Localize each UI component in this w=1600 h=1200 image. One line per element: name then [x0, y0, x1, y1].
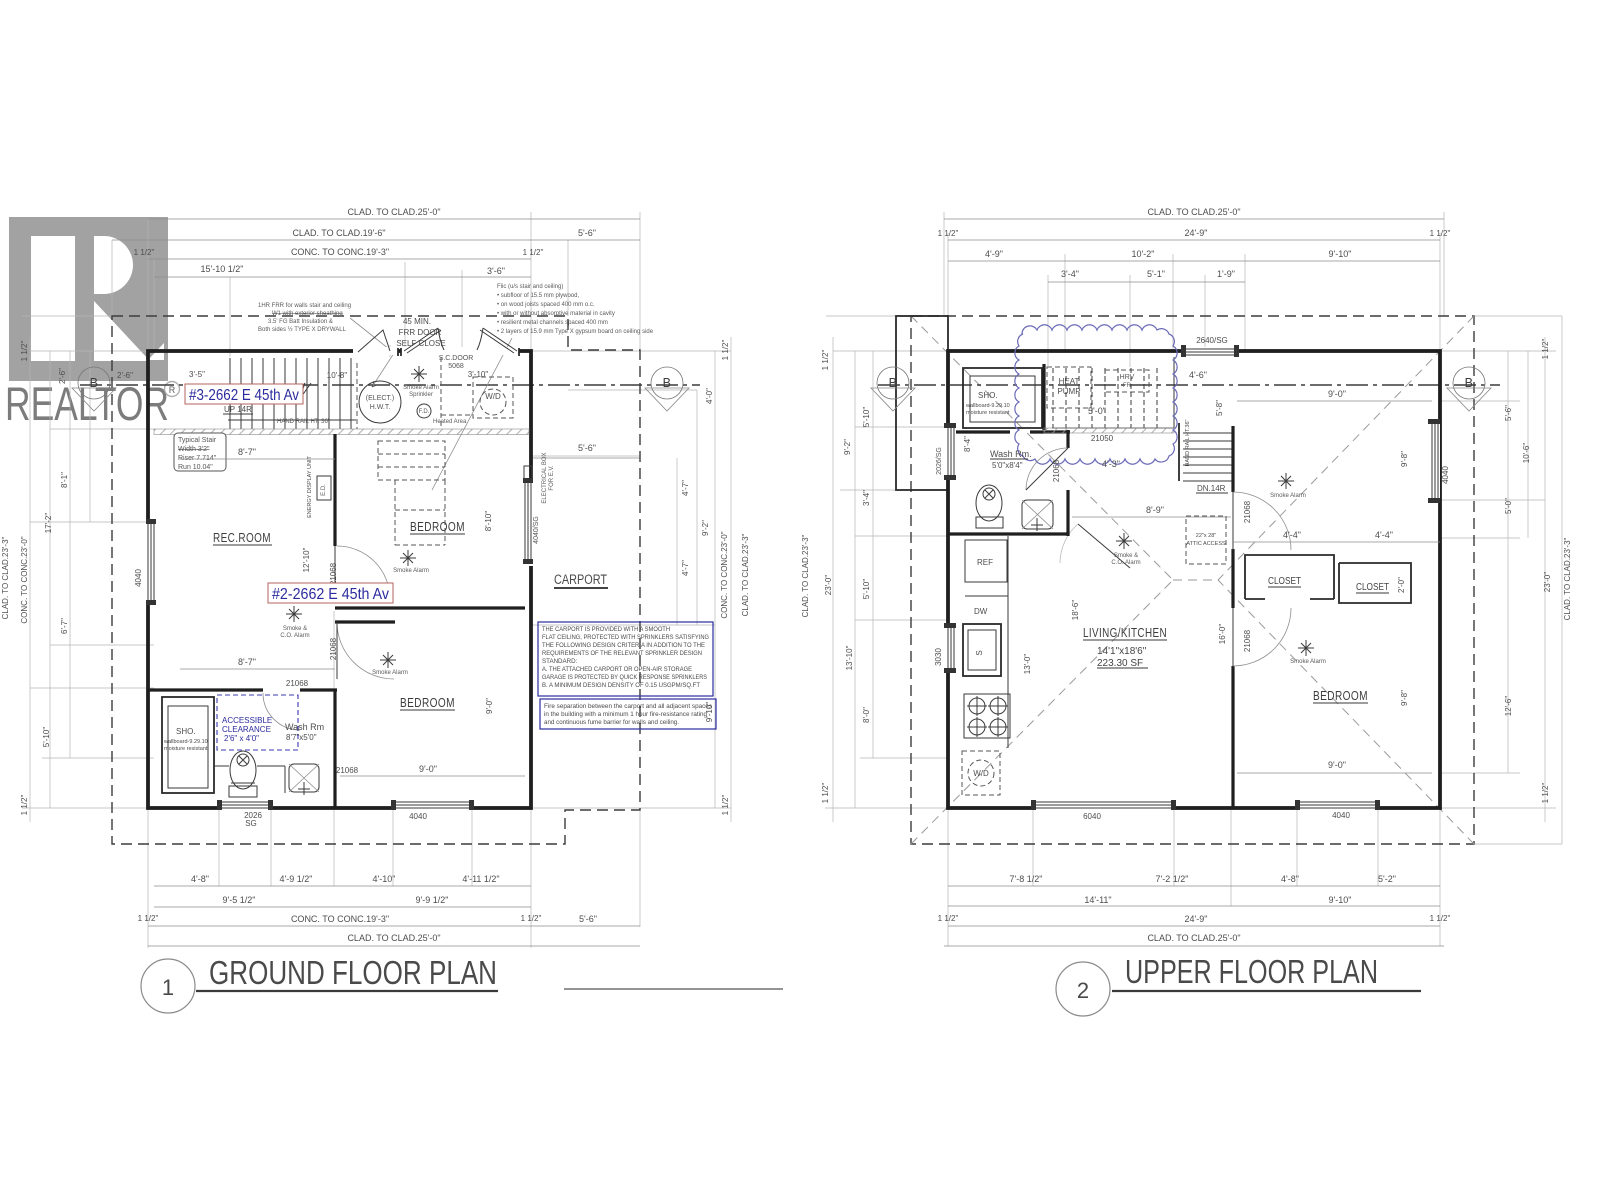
svg-text:E.D.: E.D. — [321, 484, 327, 496]
svg-text:12'-6": 12'-6" — [1504, 696, 1513, 717]
svg-text:CLAD. TO CLAD.25'-0": CLAD. TO CLAD.25'-0" — [1147, 933, 1240, 943]
svg-text:CLAD. TO CLAD.19'-6": CLAD. TO CLAD.19'-6" — [292, 228, 385, 238]
svg-text:21068: 21068 — [286, 679, 309, 688]
svg-text:Smoke &: Smoke & — [1114, 553, 1138, 559]
svg-text:3'-4": 3'-4" — [862, 490, 871, 506]
svg-text:W/D: W/D — [973, 769, 989, 778]
svg-text:CONC. TO CONC.23'-0": CONC. TO CONC.23'-0" — [20, 536, 29, 623]
svg-text:Typical Stair: Typical Stair — [178, 437, 217, 444]
svg-text:wallboard-9.29.10: wallboard-9.29.10 — [163, 739, 208, 745]
svg-text:Sprinkler: Sprinkler — [409, 392, 433, 398]
svg-text:4'-10": 4'-10" — [373, 874, 396, 884]
svg-text:R: R — [169, 385, 176, 395]
svg-text:3030: 3030 — [934, 648, 943, 666]
svg-text:Smoke Alarm: Smoke Alarm — [1270, 493, 1306, 499]
svg-text:LIVING/KITCHEN: LIVING/KITCHEN — [1083, 626, 1167, 640]
svg-text:1 1/2": 1 1/2" — [721, 795, 730, 816]
svg-text:moisture resistant: moisture resistant — [164, 746, 208, 752]
svg-text:1 1/2": 1 1/2" — [821, 350, 830, 371]
svg-text:4'-8": 4'-8" — [191, 874, 209, 884]
svg-text:4'-8": 4'-8" — [1281, 874, 1299, 884]
svg-text:• on wood joists spaced 400: • on wood joists spaced 400 mm o.c. — [497, 302, 595, 308]
svg-text:moisture resistant: moisture resistant — [966, 410, 1010, 416]
svg-text:5'-0": 5'-0" — [1504, 498, 1513, 514]
svg-text:21068: 21068 — [336, 766, 359, 775]
svg-text:9'-0": 9'-0" — [419, 764, 437, 774]
svg-text:DN.14R: DN.14R — [1197, 484, 1226, 493]
svg-text:(ELECT.): (ELECT.) — [366, 395, 394, 402]
svg-text:8'7"x5'0": 8'7"x5'0" — [286, 733, 317, 742]
svg-text:HEAT: HEAT — [1059, 377, 1080, 386]
svg-text:21068: 21068 — [1243, 629, 1252, 652]
svg-text:wallboard-9.29.10: wallboard-9.29.10 — [965, 403, 1010, 409]
svg-text:4'-4": 4'-4" — [1283, 530, 1301, 540]
svg-text:ELECTRICAL BOX: ELECTRICAL BOX — [542, 452, 548, 503]
svg-text:1 1/2": 1 1/2" — [821, 783, 830, 804]
svg-text:FR: FR — [1123, 383, 1132, 389]
svg-text:THE FOLLOWING DESIGN CRITERIA: THE FOLLOWING DESIGN CRITERIA IN ADDITIO… — [542, 642, 705, 649]
svg-text:9'-9 1/2": 9'-9 1/2" — [416, 895, 449, 905]
svg-text:CLAD. TO CLAD.25'-0": CLAD. TO CLAD.25'-0" — [347, 933, 440, 943]
svg-text:#3-2662 E 45th Av: #3-2662 E 45th Av — [189, 387, 299, 404]
svg-text:9'-8": 9'-8" — [1400, 690, 1409, 706]
svg-text:23'-0": 23'-0" — [824, 575, 833, 596]
svg-text:1 1/2": 1 1/2" — [938, 229, 959, 238]
svg-text:4'-3": 4'-3" — [1102, 459, 1120, 469]
svg-text:2: 2 — [1077, 978, 1089, 1003]
svg-text:5'-10": 5'-10" — [42, 727, 51, 748]
svg-text:10'-6": 10'-6" — [1522, 443, 1531, 464]
svg-text:14'-11": 14'-11" — [1084, 895, 1111, 905]
svg-text:Run 10.04": Run 10.04" — [178, 464, 213, 471]
svg-text:STANDARD:: STANDARD: — [542, 658, 578, 665]
svg-text:9'-5 1/2": 9'-5 1/2" — [223, 895, 256, 905]
svg-text:24'-9": 24'-9" — [1185, 914, 1208, 924]
svg-text:2'6" x 4'0": 2'6" x 4'0" — [224, 734, 259, 743]
svg-text:5'-8": 5'-8" — [1215, 400, 1224, 416]
svg-text:HRV: HRV — [1120, 374, 1135, 381]
svg-text:• 2 layers of 15.9 mm Type X g: • 2 layers of 15.9 mm Type X gypsum boar… — [497, 329, 654, 335]
svg-text:SG: SG — [245, 819, 257, 828]
svg-text:8'-7": 8'-7" — [238, 657, 256, 667]
svg-text:1 1/2": 1 1/2" — [1541, 339, 1550, 360]
svg-text:UP 14R: UP 14R — [224, 405, 252, 414]
svg-text:in the building with a minimum: in the building with a minimum 1 hour fi… — [544, 711, 707, 718]
svg-text:5'-6": 5'-6" — [1504, 405, 1513, 421]
svg-text:5'-0": 5'-0" — [1088, 406, 1106, 416]
svg-text:Wash Rm: Wash Rm — [285, 722, 324, 732]
svg-text:Fire separation between the c: Fire separation between the carport and … — [544, 703, 712, 710]
svg-text:24'-9": 24'-9" — [1185, 228, 1208, 238]
svg-text:CONC. TO CONC.19'-3": CONC. TO CONC.19'-3" — [291, 247, 389, 257]
svg-text:BEDROOM: BEDROOM — [400, 696, 455, 710]
svg-text:17'-2": 17'-2" — [44, 513, 53, 534]
svg-text:6'-7": 6'-7" — [60, 618, 69, 634]
svg-text:CONC. TO CONC.23'-0": CONC. TO CONC.23'-0" — [720, 531, 729, 618]
svg-text:5'-10": 5'-10" — [862, 579, 871, 600]
svg-text:DW: DW — [974, 607, 988, 616]
svg-text:4040/SG: 4040/SG — [533, 516, 540, 544]
svg-text:12'-10": 12'-10" — [302, 547, 311, 572]
svg-text:4'-4": 4'-4" — [1375, 530, 1393, 540]
svg-text:4040: 4040 — [1441, 466, 1450, 484]
svg-text:1 1/2": 1 1/2" — [721, 340, 730, 361]
svg-text:6040: 6040 — [1083, 812, 1101, 821]
svg-text:HAND RAIL HT.36": HAND RAIL HT.36" — [1185, 419, 1191, 466]
svg-text:Riser 7.714": Riser 7.714" — [178, 455, 217, 462]
svg-text:4'-7": 4'-7" — [681, 560, 690, 576]
svg-text:PUMP: PUMP — [1057, 387, 1080, 396]
svg-text:Smoke Alarm: Smoke Alarm — [1290, 659, 1326, 665]
svg-text:• resilient metal channels spa: • resilient metal channels spaced 400 mm — [497, 320, 608, 326]
svg-text:THE CARPORT IS PROVIDED WITH: THE CARPORT IS PROVIDED WITH A SMOOTH — [542, 626, 670, 633]
svg-text:• with or without absorptive m: • with or without absorptive material in… — [497, 311, 615, 317]
svg-text:7'-2 1/2": 7'-2 1/2" — [1156, 874, 1189, 884]
svg-text:23'-0": 23'-0" — [1543, 572, 1552, 593]
svg-text:B: B — [90, 376, 99, 390]
svg-text:B: B — [663, 376, 672, 390]
svg-text:5'-2": 5'-2" — [1378, 874, 1396, 884]
svg-text:4'-0": 4'-0" — [705, 388, 714, 404]
svg-text:A. THE ATTACHED CARPORT OR OPE: A. THE ATTACHED CARPORT OR OPEN-AIR STOR… — [542, 666, 692, 673]
svg-text:W1 with exterior sheathing: W1 with exterior sheathing — [272, 311, 343, 317]
svg-text:1 1/2": 1 1/2" — [138, 914, 159, 923]
svg-text:4'-9": 4'-9" — [985, 249, 1003, 259]
svg-text:CLAD. TO CLAD.23'-3": CLAD. TO CLAD.23'-3" — [741, 533, 750, 616]
svg-text:5'-1": 5'-1" — [1147, 269, 1165, 279]
svg-text:1 1/2": 1 1/2" — [20, 795, 29, 816]
svg-text:1 1/2": 1 1/2" — [1541, 783, 1550, 804]
svg-text:45 MIN.: 45 MIN. — [403, 317, 431, 326]
svg-text:5'0"x8'4": 5'0"x8'4" — [992, 461, 1023, 470]
svg-text:2'-0": 2'-0" — [1397, 577, 1406, 593]
svg-text:Smoke Alarm: Smoke Alarm — [393, 568, 429, 574]
svg-text:ATTIC ACCESS: ATTIC ACCESS — [1186, 541, 1226, 547]
svg-text:4'-9 1/2": 4'-9 1/2" — [280, 874, 313, 884]
svg-text:CARPORT: CARPORT — [554, 572, 607, 587]
svg-text:CLOSET: CLOSET — [1356, 582, 1389, 593]
svg-text:S: S — [975, 650, 984, 655]
svg-text:21068: 21068 — [329, 562, 338, 585]
svg-text:18'-6": 18'-6" — [1071, 600, 1080, 621]
svg-text:21068: 21068 — [329, 637, 338, 660]
svg-text:1: 1 — [162, 975, 174, 1000]
svg-text:Smoke Alarm: Smoke Alarm — [403, 385, 439, 391]
svg-text:CLAD. TO CLAD.23'-3": CLAD. TO CLAD.23'-3" — [801, 534, 810, 617]
svg-text:Heated Area: Heated Area — [433, 419, 467, 425]
svg-text:13'-10": 13'-10" — [845, 645, 854, 670]
svg-text:ACCESSIBLE: ACCESSIBLE — [222, 716, 272, 725]
svg-text:9'-10": 9'-10" — [1329, 895, 1352, 905]
svg-text:8'-0": 8'-0" — [862, 707, 871, 723]
svg-text:3'-6": 3'-6" — [487, 266, 505, 276]
svg-text:1HR FRR for walls stair and ce: 1HR FRR for walls stair and ceiling — [258, 303, 351, 309]
svg-text:Smoke &: Smoke & — [283, 626, 307, 632]
svg-text:10'-8": 10'-8" — [327, 371, 348, 380]
svg-text:9'-10": 9'-10" — [1329, 249, 1352, 259]
svg-text:B. A MINIMUM DESIGN DENSITY OF: B. A MINIMUM DESIGN DENSITY OF 0.15 USGP… — [542, 682, 700, 689]
svg-text:• subfloor of 15.5 mm plywood,: • subfloor of 15.5 mm plywood, — [497, 293, 579, 299]
svg-text:CLAD. TO CLAD.25'-0": CLAD. TO CLAD.25'-0" — [1147, 207, 1240, 217]
svg-text:21050: 21050 — [1091, 434, 1114, 443]
svg-text:CONC. TO CONC.19'-3": CONC. TO CONC.19'-3" — [291, 914, 389, 924]
svg-text:C.O. Alarm: C.O. Alarm — [1111, 560, 1140, 566]
svg-text:FOR E.V.: FOR E.V. — [549, 465, 555, 490]
svg-text:SHO.: SHO. — [978, 391, 998, 400]
svg-text:and continuous fume barrier fo: and continuous fume barrier for walls an… — [544, 719, 679, 726]
svg-text:1 1/2": 1 1/2" — [938, 914, 959, 923]
svg-text:223.30 SF: 223.30 SF — [1097, 658, 1143, 669]
svg-text:14'1"x18'6": 14'1"x18'6" — [1097, 646, 1147, 657]
svg-text:15'-10 1/2": 15'-10 1/2" — [201, 264, 244, 274]
svg-text:B: B — [1465, 376, 1474, 390]
svg-text:Wash Rm.: Wash Rm. — [990, 449, 1032, 459]
svg-text:Flic (u/s stair and ceiling): Flic (u/s stair and ceiling) — [497, 284, 563, 290]
svg-text:1 1/2": 1 1/2" — [134, 248, 155, 257]
svg-text:BEDROOM: BEDROOM — [410, 520, 465, 534]
svg-text:9'-0": 9'-0" — [485, 698, 494, 714]
svg-text:REQUIREMENTS OF THE RELEVANT S: REQUIREMENTS OF THE RELEVANT SPRINKLER D… — [542, 650, 702, 657]
svg-text:2026/SG: 2026/SG — [936, 447, 943, 475]
svg-text:ENERGY DISPLAY UNIT: ENERGY DISPLAY UNIT — [307, 455, 313, 517]
svg-text:3'-4": 3'-4" — [1061, 269, 1079, 279]
svg-text:BEDROOM: BEDROOM — [1313, 689, 1368, 703]
svg-text:13'-0": 13'-0" — [1023, 654, 1032, 675]
svg-text:2640/SG: 2640/SG — [1196, 336, 1228, 345]
svg-text:H.W.T.: H.W.T. — [370, 404, 391, 411]
svg-text:8'-7": 8'-7" — [238, 447, 256, 457]
svg-text:9'-0": 9'-0" — [1328, 760, 1346, 770]
svg-text:3'-5": 3'-5" — [189, 370, 205, 379]
svg-text:B: B — [889, 376, 898, 390]
svg-text:8'-10": 8'-10" — [484, 511, 493, 532]
svg-text:7'-8 1/2": 7'-8 1/2" — [1010, 874, 1043, 884]
svg-text:REC.ROOM: REC.ROOM — [213, 531, 271, 545]
svg-text:21068: 21068 — [1052, 459, 1061, 482]
svg-text:1 1/2": 1 1/2" — [20, 341, 29, 362]
svg-text:CLOSET: CLOSET — [1268, 576, 1301, 587]
svg-text:FLAT CEILING, PROTECTED WITH S: FLAT CEILING, PROTECTED WITH SPRINKLERS … — [542, 634, 709, 641]
svg-text:CLEARANCE: CLEARANCE — [222, 725, 271, 734]
svg-text:C.O. Alarm: C.O. Alarm — [280, 633, 309, 639]
svg-text:UPPER FLOOR PLAN: UPPER FLOOR PLAN — [1125, 953, 1378, 990]
svg-text:GROUND FLOOR PLAN: GROUND FLOOR PLAN — [209, 954, 497, 991]
svg-text:CLAD. TO CLAD.23'-3": CLAD. TO CLAD.23'-3" — [1, 536, 10, 619]
svg-text:GARAGE IS PROTECTED BY QUICK R: GARAGE IS PROTECTED BY QUICK RESPONSE SP… — [542, 674, 707, 681]
svg-text:1 1/2": 1 1/2" — [523, 248, 544, 257]
svg-text:21068: 21068 — [1243, 500, 1252, 523]
svg-text:8'-4": 8'-4" — [963, 436, 972, 452]
svg-text:1 1/2": 1 1/2" — [1430, 914, 1451, 923]
svg-text:CLAD. TO CLAD.25'-0": CLAD. TO CLAD.25'-0" — [347, 207, 440, 217]
svg-text:2'-6": 2'-6" — [58, 368, 67, 384]
svg-text:10'-2": 10'-2" — [1132, 249, 1155, 259]
svg-text:4'-7": 4'-7" — [681, 480, 690, 496]
svg-text:4040: 4040 — [409, 812, 427, 821]
svg-text:4040: 4040 — [134, 569, 143, 587]
svg-text:1'-9": 1'-9" — [1217, 269, 1235, 279]
svg-text:4040: 4040 — [1332, 811, 1350, 820]
svg-text:5'-6": 5'-6" — [579, 914, 597, 924]
svg-text:2'-6": 2'-6" — [117, 371, 133, 380]
svg-text:9'-8": 9'-8" — [1400, 451, 1409, 467]
svg-text:9'-0": 9'-0" — [1328, 389, 1346, 399]
svg-text:SHO.: SHO. — [176, 727, 196, 736]
svg-text:5'-6": 5'-6" — [578, 443, 596, 453]
svg-text:S.C.DOOR: S.C.DOOR — [439, 355, 474, 362]
svg-text:9'-2": 9'-2" — [843, 439, 852, 455]
svg-text:4'-6": 4'-6" — [1189, 370, 1207, 380]
svg-text:F.D.: F.D. — [419, 409, 430, 415]
svg-text:8'-1": 8'-1" — [60, 472, 69, 488]
svg-text:HAND RAIL HT. 36": HAND RAIL HT. 36" — [277, 419, 330, 425]
svg-text:Width 3'2": Width 3'2" — [178, 446, 210, 453]
svg-text:1 1/2": 1 1/2" — [1430, 229, 1451, 238]
svg-text:5'-6": 5'-6" — [578, 228, 596, 238]
svg-text:Both sides ½ TYPE X DRYWALL: Both sides ½ TYPE X DRYWALL — [258, 326, 347, 333]
svg-text:#2-2662 E 45th Av: #2-2662 E 45th Av — [272, 586, 389, 603]
svg-text:4'-11 1/2": 4'-11 1/2" — [462, 874, 499, 884]
svg-text:8'-9": 8'-9" — [1146, 505, 1164, 515]
svg-text:3.5' FG Batt Insulation &: 3.5' FG Batt Insulation & — [268, 319, 333, 325]
svg-text:CLAD. TO CLAD.23'-3": CLAD. TO CLAD.23'-3" — [1563, 537, 1572, 620]
svg-text:9'-2": 9'-2" — [701, 520, 710, 536]
svg-text:3'-10": 3'-10" — [468, 370, 489, 379]
svg-text:1 1/2": 1 1/2" — [521, 914, 542, 923]
svg-text:5068: 5068 — [448, 363, 464, 370]
svg-text:22"x 28": 22"x 28" — [1196, 533, 1216, 539]
svg-text:REF: REF — [977, 558, 993, 567]
svg-text:W/D: W/D — [485, 392, 501, 401]
svg-text:Smoke Alarm: Smoke Alarm — [372, 670, 408, 676]
svg-text:5'-10": 5'-10" — [862, 407, 871, 428]
svg-text:16'-0": 16'-0" — [1218, 624, 1227, 645]
